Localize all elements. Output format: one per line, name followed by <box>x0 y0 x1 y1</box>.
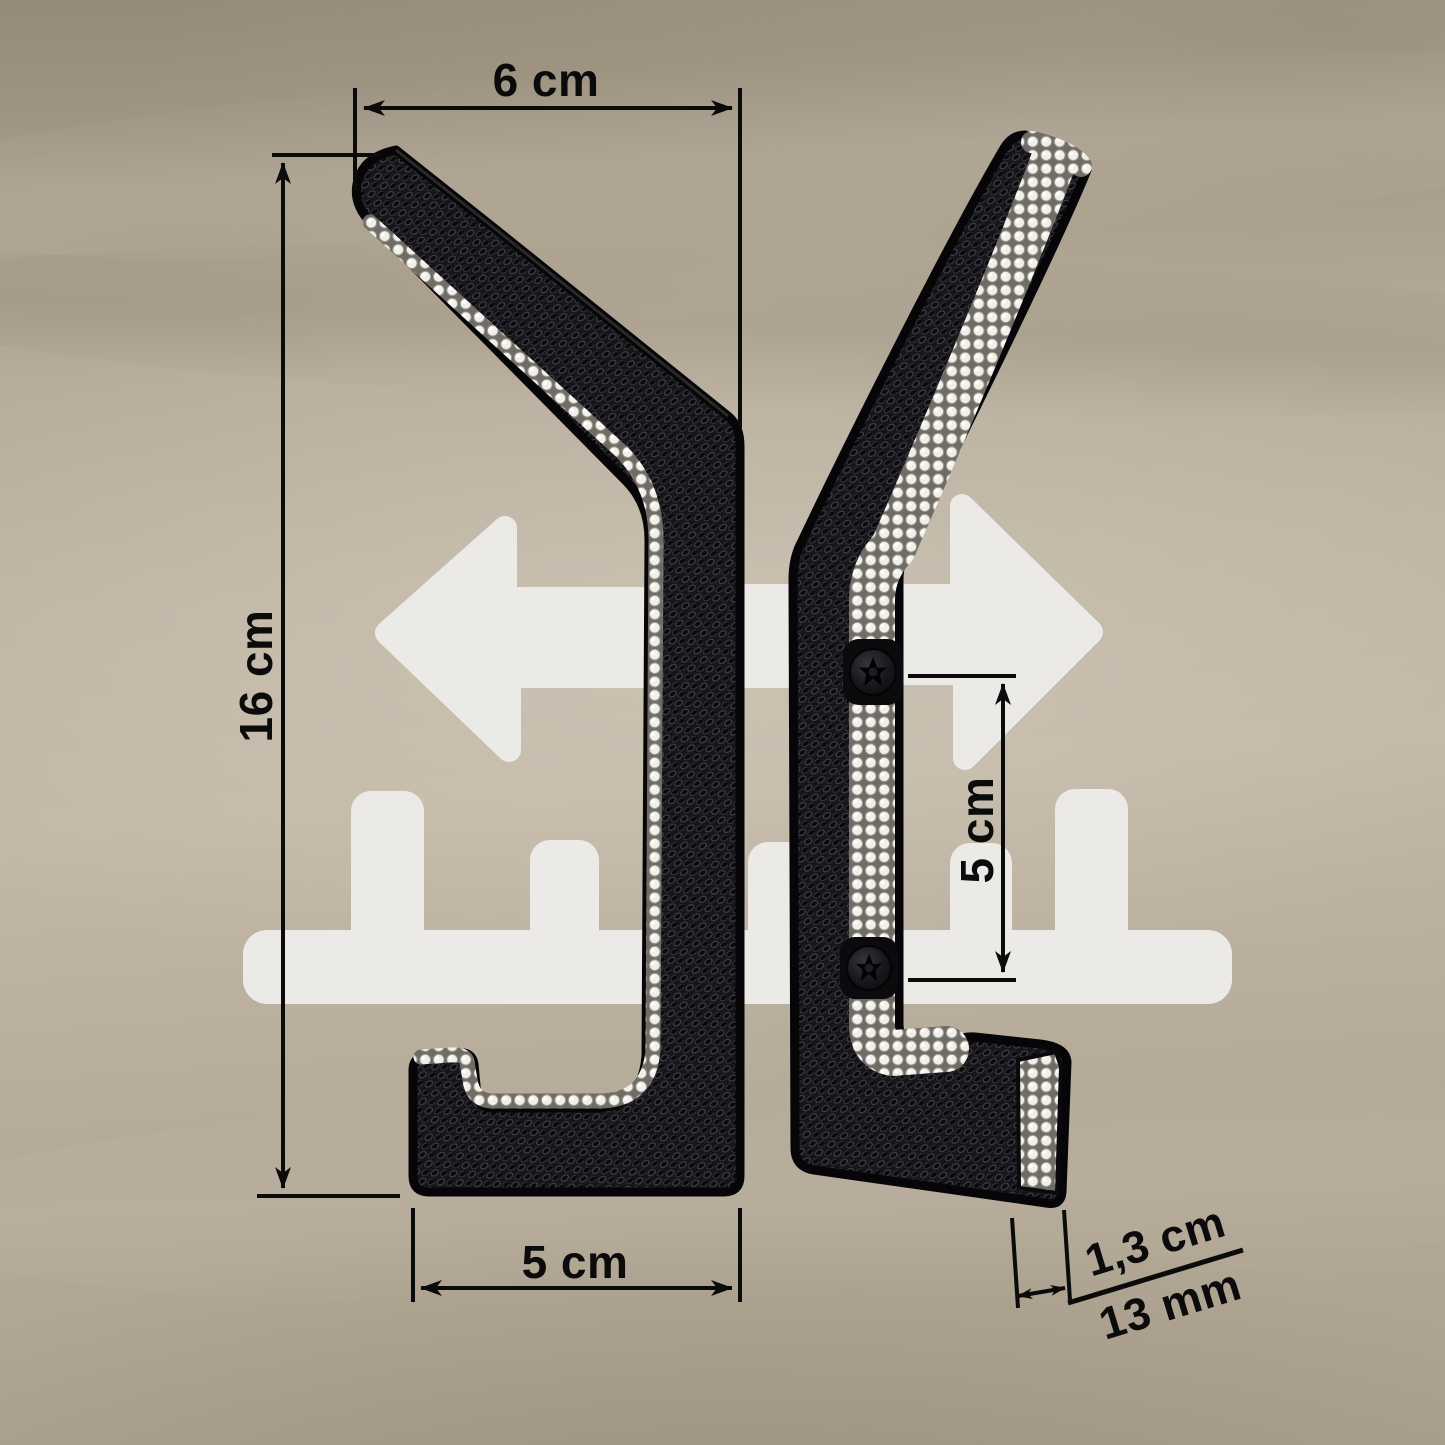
dim-thickness-arrow-line <box>1018 1288 1065 1296</box>
mounting-screw <box>843 639 903 705</box>
mounting-screw <box>840 937 898 999</box>
dim-thickness-tick-right <box>1064 1210 1070 1300</box>
right-hook-lip-crystals <box>1018 1052 1061 1193</box>
dimension-lines <box>257 88 1243 1308</box>
label-hook-height: 16 cm <box>230 610 282 743</box>
product-dimension-image: 6 cm 16 cm 5 cm 5 cm 1,3 cm 13 mm <box>0 0 1445 1445</box>
label-screw-spacing: 5 cm <box>951 777 1003 884</box>
label-hook-reach: 6 cm <box>493 54 600 106</box>
label-base-depth: 5 cm <box>522 1236 629 1288</box>
dim-thickness-tick-left <box>1012 1218 1018 1308</box>
